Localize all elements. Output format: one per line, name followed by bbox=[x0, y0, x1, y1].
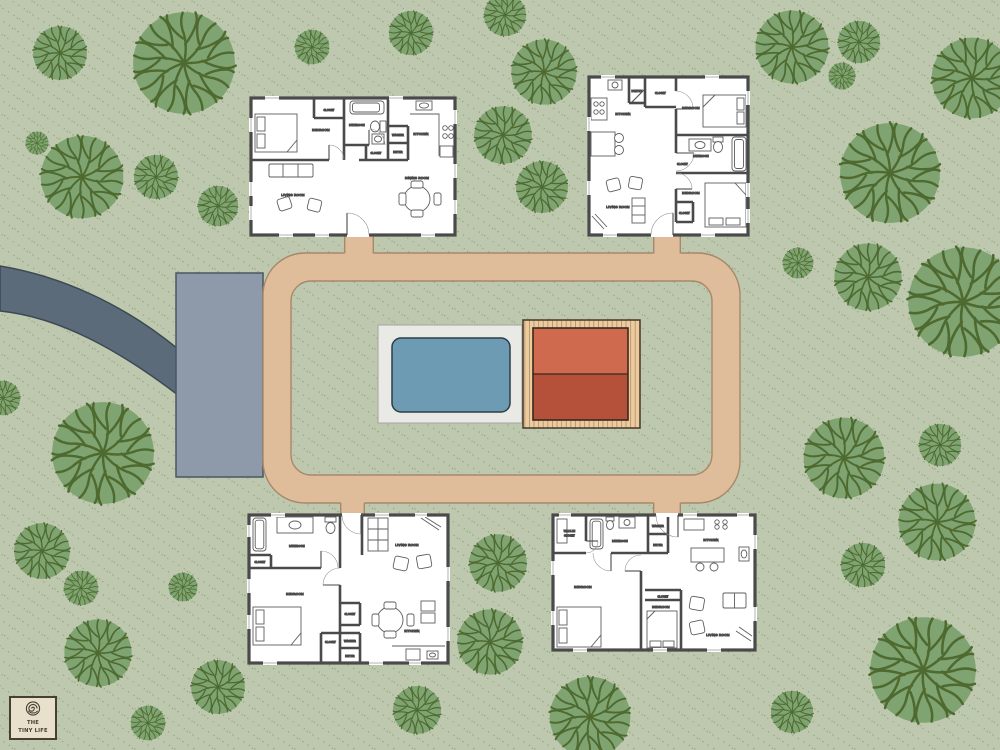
room-label: CLOSET bbox=[657, 596, 668, 599]
entry-gap bbox=[347, 233, 369, 237]
room-label: LIVING ROOM bbox=[395, 543, 419, 547]
room-label: LIVING ROOM bbox=[606, 205, 630, 209]
house-bottom-left: BATHROOM CLOSET BEDROOM CLOSET CLOSET WA… bbox=[247, 513, 450, 665]
room-label: BEDROOM bbox=[682, 106, 700, 110]
bed bbox=[703, 95, 746, 127]
room-label: CLOSET bbox=[655, 92, 666, 95]
bathroom-sink bbox=[689, 139, 711, 151]
bed bbox=[253, 607, 301, 645]
toilet bbox=[606, 517, 614, 530]
site-plan: BEDROOM CLOSET BATHROOM CLOSET WASHER DR… bbox=[0, 0, 1000, 750]
room-label: CLOSET bbox=[679, 212, 690, 215]
room-label: DRYER bbox=[393, 151, 403, 154]
room-label: WALK-IN bbox=[564, 530, 576, 533]
room-label: PANTRY bbox=[632, 90, 643, 93]
room-label: BATHROOM bbox=[289, 545, 305, 548]
room-label: CLOSET bbox=[323, 109, 334, 112]
room-label: KITCHEN bbox=[413, 132, 428, 136]
sofa bbox=[269, 164, 313, 177]
bathtub bbox=[590, 519, 603, 549]
bed bbox=[647, 611, 677, 648]
bookshelf bbox=[368, 518, 388, 551]
room-label: BEDROOM bbox=[574, 585, 592, 589]
bathtub bbox=[732, 137, 746, 171]
bookshelf bbox=[632, 198, 645, 223]
house-top-left: BEDROOM CLOSET BATHROOM CLOSET WASHER DR… bbox=[249, 96, 457, 237]
bathtub bbox=[350, 101, 384, 114]
room-label: KITCHEN bbox=[404, 629, 419, 633]
room-label: CLOSET bbox=[677, 163, 688, 166]
bathroom-sink bbox=[277, 517, 313, 533]
room-label: BEDROOM bbox=[652, 605, 670, 609]
bed bbox=[255, 114, 297, 152]
room-label: DRYER bbox=[345, 655, 355, 658]
room-label: KITCHEN bbox=[615, 112, 630, 116]
swimming-pool bbox=[392, 338, 510, 412]
logo-text-line2: TINY LIFE bbox=[18, 728, 48, 734]
bed bbox=[557, 607, 601, 647]
entry-gap bbox=[342, 513, 361, 517]
room-label: WASHER bbox=[652, 525, 664, 528]
bed bbox=[705, 183, 746, 227]
bathroom-sink bbox=[619, 517, 635, 528]
room-label: CLOSET bbox=[564, 535, 575, 538]
room-label: WASHER bbox=[392, 134, 404, 137]
armchair bbox=[307, 198, 323, 213]
armchair bbox=[393, 556, 409, 572]
room-label: BEDROOM bbox=[286, 592, 304, 596]
pool-area bbox=[378, 325, 522, 423]
pavilion-roof-bottom bbox=[533, 374, 628, 420]
parking-pad bbox=[176, 273, 263, 477]
armchair bbox=[628, 176, 643, 190]
room-label: CLOSET bbox=[370, 152, 381, 155]
entry-gap bbox=[651, 233, 673, 237]
armchair bbox=[606, 177, 622, 192]
logo-box: THE TINY LIFE bbox=[10, 697, 56, 739]
logo-text-line1: THE bbox=[27, 720, 39, 726]
toilet bbox=[325, 517, 336, 534]
armchair bbox=[416, 554, 432, 569]
room-label: LIVING ROOM bbox=[706, 633, 730, 637]
house-top-right: KITCHEN PANTRY CLOSET BEDROOM BATHROOM C… bbox=[587, 75, 750, 237]
room-label: DRYER bbox=[653, 544, 663, 547]
toilet bbox=[713, 137, 723, 153]
room-label: CLOSET bbox=[325, 641, 336, 644]
room-label: CLOSET bbox=[344, 613, 355, 616]
room-label: BATHROOM bbox=[693, 155, 709, 158]
entry-gap bbox=[656, 513, 678, 517]
room-label: DINING ROOM bbox=[405, 176, 429, 180]
deck-area bbox=[523, 320, 640, 428]
armchair bbox=[689, 620, 705, 636]
house-bottom-right: WALK-IN CLOSET BATHROOM WASHER DRYER KIT… bbox=[551, 513, 757, 652]
room-label: KITCHEN bbox=[703, 538, 718, 542]
room-label: BATHROOM bbox=[349, 124, 365, 127]
toilet bbox=[371, 121, 387, 132]
pavilion-roof-top bbox=[533, 328, 628, 374]
tree bbox=[33, 26, 87, 80]
bathtub bbox=[253, 518, 266, 551]
room-label: WASHER bbox=[344, 640, 356, 643]
room-label: BATHROOM bbox=[612, 540, 628, 543]
room-label: LIVING ROOM bbox=[281, 193, 305, 197]
tree bbox=[469, 534, 527, 592]
sofa bbox=[723, 593, 746, 608]
room-label: BEDROOM bbox=[312, 128, 330, 132]
room-label: BEDROOM bbox=[682, 191, 700, 195]
room-label: CLOSET bbox=[254, 561, 265, 564]
armchair bbox=[689, 596, 705, 611]
